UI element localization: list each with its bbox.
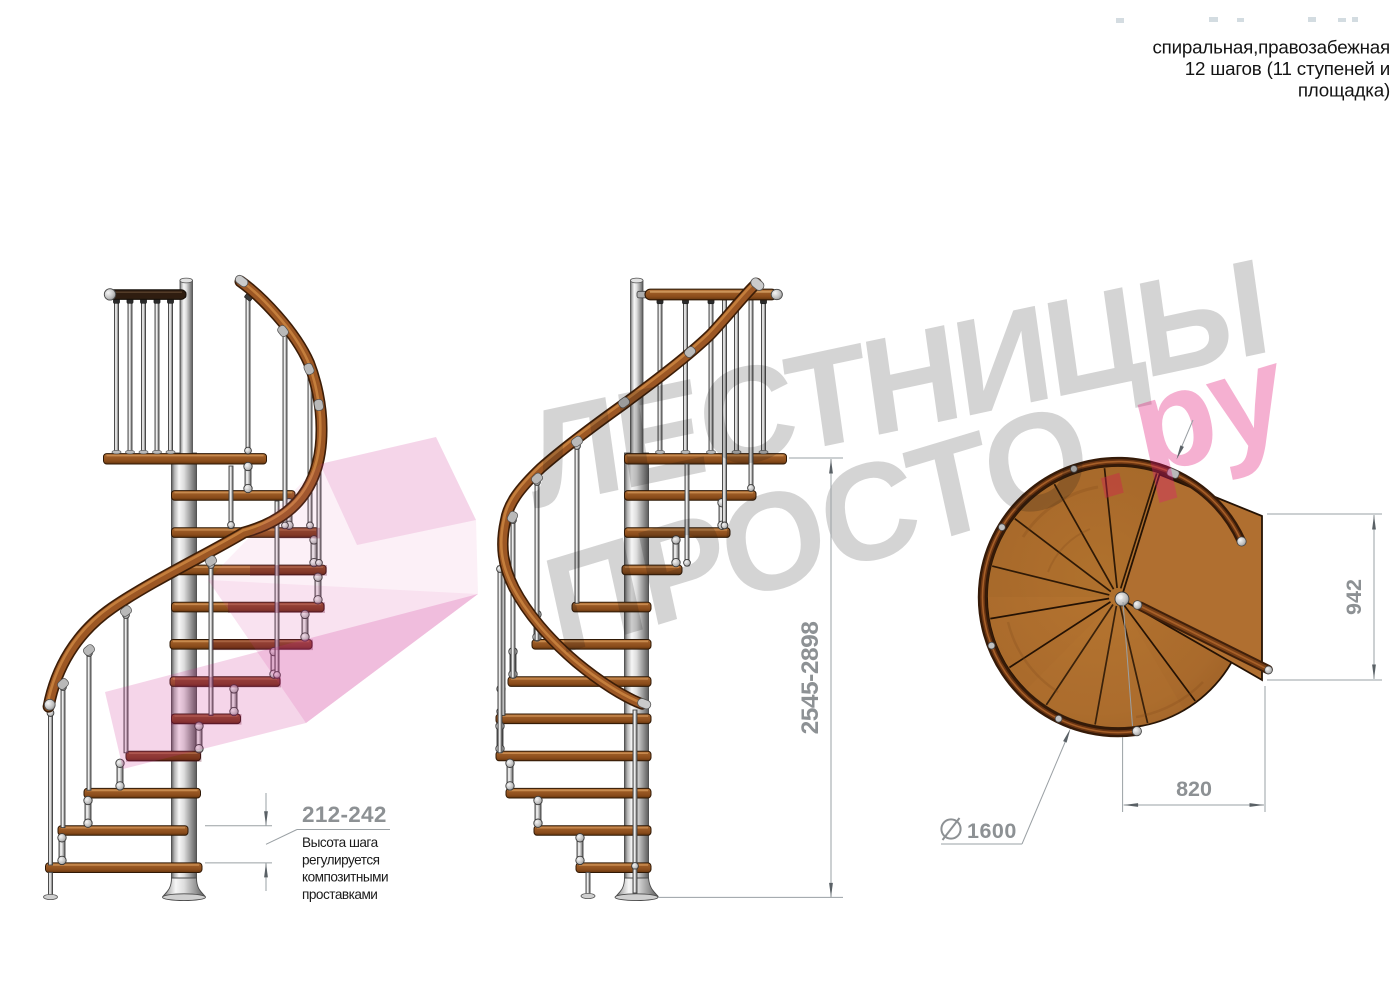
svg-text:площадка): площадка) — [1298, 80, 1390, 101]
svg-text:820: 820 — [1176, 777, 1212, 801]
svg-text:спиральная,правозабежная: спиральная,правозабежная — [1152, 37, 1390, 58]
svg-text:12 шагов (11 ступеней и: 12 шагов (11 ступеней и — [1185, 58, 1390, 79]
svg-text:942: 942 — [1342, 579, 1366, 615]
svg-text:2545-2898: 2545-2898 — [797, 622, 824, 735]
svg-text:212-242: 212-242 — [302, 802, 387, 827]
svg-text:1600: 1600 — [967, 819, 1017, 843]
